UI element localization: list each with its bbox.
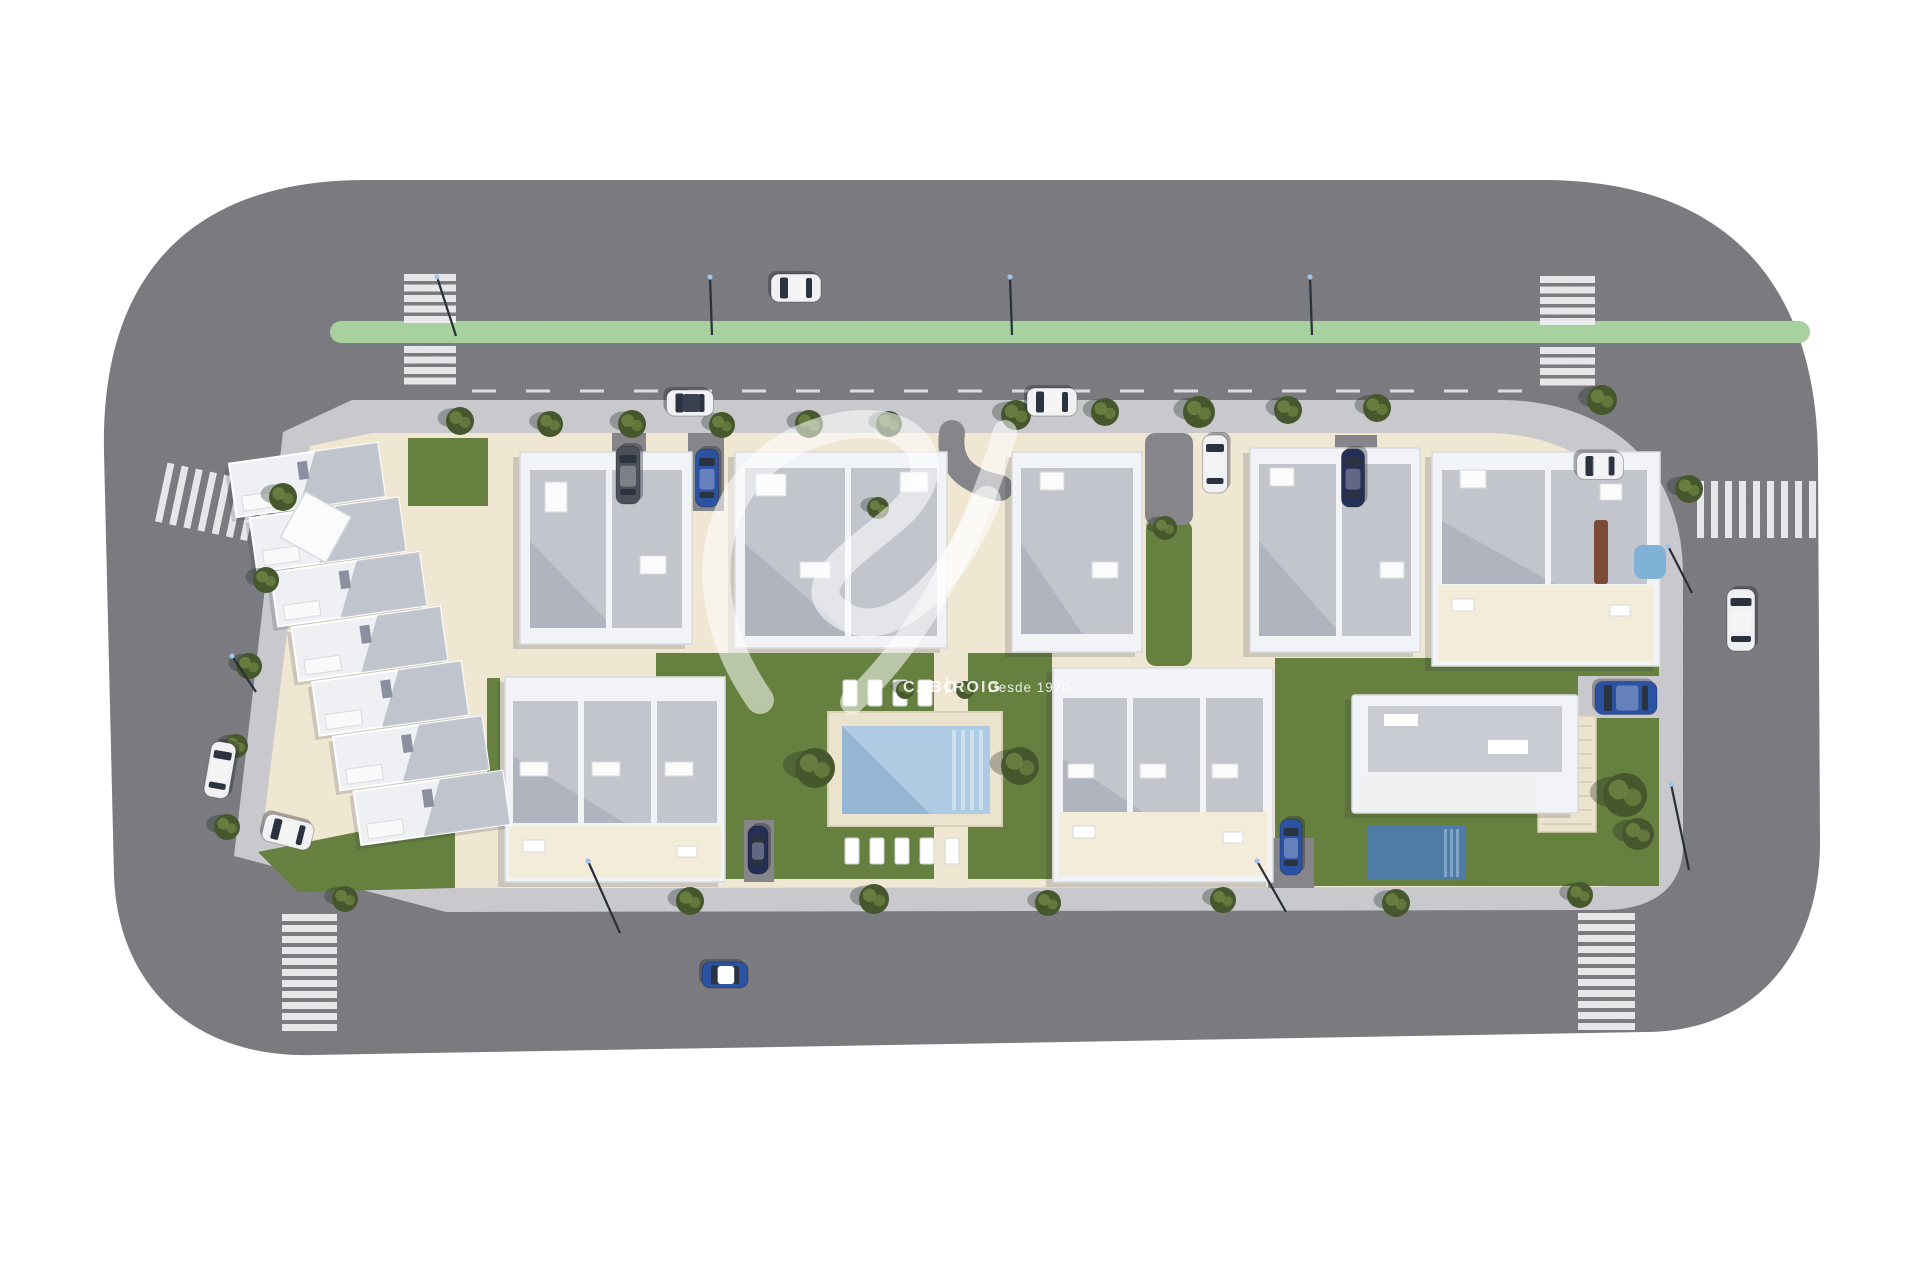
tree-foliage xyxy=(1015,411,1027,423)
crosswalk-stripe xyxy=(282,914,337,921)
crosswalk-stripe xyxy=(404,285,456,292)
wooden-pergola xyxy=(1594,520,1608,584)
tree-foliage xyxy=(459,417,470,428)
crosswalk xyxy=(1697,481,1816,538)
crosswalk-stripe xyxy=(1578,968,1635,975)
crosswalk-stripe xyxy=(282,958,337,965)
crosswalk-stripe xyxy=(1540,318,1595,325)
crosswalk-stripe xyxy=(404,295,456,302)
crosswalk-stripe xyxy=(1578,913,1635,920)
tree-foliage xyxy=(344,895,354,905)
rooftop-structure xyxy=(1380,562,1404,578)
car xyxy=(699,959,748,988)
car xyxy=(616,443,643,504)
car xyxy=(1280,816,1305,875)
crosswalk-stripe xyxy=(1578,990,1635,997)
crosswalk-stripe xyxy=(1578,1001,1635,1008)
tree-foliage xyxy=(1601,396,1613,408)
rooftop-structure xyxy=(520,762,548,776)
watermark-tagline: Desde 1970 xyxy=(988,680,1071,695)
crosswalk-stripe xyxy=(1739,481,1746,538)
car-windshield xyxy=(780,278,788,299)
car-roof xyxy=(700,469,715,490)
tree-foliage xyxy=(226,823,236,833)
pool-steps xyxy=(979,730,983,810)
tree-foliage xyxy=(1376,404,1387,415)
crosswalk-stripe xyxy=(1540,379,1595,386)
crosswalk-stripe xyxy=(1578,979,1635,986)
car-roof xyxy=(718,966,735,984)
rooftop-structure xyxy=(1600,484,1622,500)
streetlamp-head xyxy=(1254,858,1259,863)
pool-steps xyxy=(952,730,956,810)
tree-foliage xyxy=(1198,407,1211,420)
car-roof xyxy=(1592,457,1609,476)
car xyxy=(696,446,722,507)
car-roof xyxy=(1284,838,1298,858)
car-roof xyxy=(788,278,806,298)
crosswalk-stripe xyxy=(282,947,337,954)
crosswalk xyxy=(1578,913,1635,1030)
terrace-furniture xyxy=(523,840,545,852)
crosswalk-stripe xyxy=(1540,358,1595,365)
crosswalk-stripe xyxy=(1781,481,1788,538)
crosswalk-stripe xyxy=(282,980,337,987)
villa-roof-structure xyxy=(1488,740,1528,754)
tree-foliage xyxy=(1624,788,1642,806)
sun-lounger xyxy=(870,838,884,864)
crosswalk-stripe xyxy=(404,316,456,323)
car xyxy=(1342,446,1368,507)
streetlamp-head xyxy=(1307,274,1312,279)
tree-foliage xyxy=(1688,485,1699,496)
rowhouse-h xyxy=(1046,668,1273,887)
car-windshield xyxy=(752,835,765,843)
crosswalk-stripe xyxy=(1711,481,1718,538)
car xyxy=(1727,586,1758,651)
streetlamp-head xyxy=(1007,274,1012,279)
car xyxy=(1203,432,1231,493)
crosswalk-stripe xyxy=(1540,276,1595,283)
tree-foliage xyxy=(1047,899,1057,909)
crosswalk-stripe xyxy=(404,367,456,374)
car-windshield xyxy=(1206,444,1224,452)
tree-foliage xyxy=(689,897,700,908)
crosswalk-stripe xyxy=(1725,481,1732,538)
car-windshield xyxy=(620,455,637,463)
tree-foliage xyxy=(265,576,275,586)
lawn xyxy=(408,438,488,506)
car xyxy=(768,271,821,302)
car xyxy=(748,823,771,874)
terrace-furniture xyxy=(1610,605,1630,616)
car-roof xyxy=(752,842,764,859)
apartment-b1 xyxy=(513,452,692,649)
car-windshield xyxy=(1036,392,1044,413)
tree-foliage xyxy=(873,895,885,907)
rooftop-structure xyxy=(1270,468,1294,486)
car-windshield xyxy=(1731,598,1752,606)
rooftop-structure xyxy=(592,762,620,776)
crosswalk-stripe xyxy=(1540,368,1595,375)
rowhouse-f xyxy=(498,677,725,887)
tree-foliage xyxy=(248,662,258,672)
car-windshield xyxy=(1345,458,1361,466)
car-windshield xyxy=(1604,685,1612,711)
crosswalk-stripe xyxy=(1767,481,1774,538)
car xyxy=(664,387,714,416)
sun-lounger xyxy=(945,838,959,864)
car-rear-window xyxy=(1731,636,1751,642)
villa-terrace xyxy=(1358,776,1536,812)
car-rear-window xyxy=(1609,457,1615,476)
rooftop-spa xyxy=(1634,545,1666,579)
driveway xyxy=(1145,433,1193,525)
car-rear-window xyxy=(1062,392,1068,412)
pool-steps xyxy=(970,730,974,810)
crosswalk-stripe xyxy=(282,991,337,998)
car-windshield xyxy=(1284,828,1299,836)
terrace xyxy=(1059,812,1267,876)
car xyxy=(1592,679,1657,715)
terrace-furniture xyxy=(1452,599,1474,611)
car-rear-window xyxy=(1284,860,1298,866)
streetlamp-head xyxy=(1665,543,1670,548)
tree-foliage xyxy=(1579,891,1589,901)
car-windshield xyxy=(699,458,715,466)
pool-steps xyxy=(961,730,965,810)
crosswalk-stripe xyxy=(282,969,337,976)
crosswalk-stripe xyxy=(1578,957,1635,964)
tree-foliage xyxy=(721,421,731,431)
tree-foliage xyxy=(549,420,559,430)
streetlamp-head xyxy=(1668,781,1673,786)
villa-pool-steps xyxy=(1444,829,1447,877)
crosswalk-stripe xyxy=(1540,297,1595,304)
tree-foliage xyxy=(1164,524,1174,534)
rooftop-structure xyxy=(545,482,567,512)
crosswalk-stripe xyxy=(1540,287,1595,294)
rooftop-structure xyxy=(1040,472,1064,490)
crosswalk-stripe xyxy=(1578,935,1635,942)
rooftop-structure xyxy=(665,762,693,776)
villa-pool-steps xyxy=(1450,829,1453,877)
unit-divider xyxy=(606,456,612,640)
car-rear-window xyxy=(1207,478,1224,484)
car-roof xyxy=(1616,686,1638,711)
crosswalk-stripe xyxy=(282,1002,337,1009)
apartment-b5 xyxy=(1425,452,1660,671)
crosswalk-stripe xyxy=(1540,308,1595,315)
tree-foliage xyxy=(1395,899,1406,910)
terrace-furniture xyxy=(1223,832,1243,843)
car-rear-window xyxy=(806,278,812,298)
crosswalk-stripe xyxy=(1540,347,1595,354)
terrace-furniture xyxy=(1073,826,1095,838)
tree-foliage xyxy=(1287,406,1298,417)
rooftop-structure xyxy=(1068,764,1094,778)
crosswalk-stripe xyxy=(1578,1023,1635,1030)
car-rear-window xyxy=(1346,492,1361,498)
site-plan-render: CABO ROIG Desde 1970 xyxy=(0,0,1920,1280)
sun-lounger xyxy=(920,838,934,864)
rooftop-structure xyxy=(1140,764,1166,778)
crosswalk-stripe xyxy=(1809,481,1816,538)
car-rear-window xyxy=(620,489,636,495)
crosswalk-stripe xyxy=(1753,481,1760,538)
aerial-scene: CABO ROIG Desde 1970 xyxy=(0,0,1920,1280)
tree-foliage xyxy=(1637,829,1650,842)
apartment-b3 xyxy=(1005,452,1142,657)
crosswalk-stripe xyxy=(404,378,456,385)
tree-foliage xyxy=(631,420,642,431)
car-roof xyxy=(620,466,636,487)
tree-foliage xyxy=(1104,408,1115,419)
car-roof xyxy=(210,760,230,783)
crosswalk-stripe xyxy=(404,274,456,281)
crosswalk xyxy=(282,914,337,1031)
car-rear-window xyxy=(1642,686,1648,711)
crosswalk-stripe xyxy=(1795,481,1802,538)
car-roof xyxy=(1044,392,1062,412)
car-windshield xyxy=(676,394,684,413)
car xyxy=(1574,450,1624,480)
streetlamp-head xyxy=(434,274,439,279)
crosswalk-stripe xyxy=(404,346,456,353)
rooftop-structure xyxy=(1212,764,1238,778)
tree-foliage xyxy=(1222,896,1232,906)
villa-pool-steps xyxy=(1456,829,1459,877)
terrace-furniture xyxy=(677,846,697,857)
streetlamp-head xyxy=(229,653,234,658)
car-windshield xyxy=(1586,456,1594,476)
car xyxy=(1024,385,1077,416)
crosswalk-stripe xyxy=(282,936,337,943)
car-roof xyxy=(1207,455,1224,476)
lawn xyxy=(1146,520,1192,666)
car-rear-window xyxy=(700,492,715,498)
crosswalk-stripe xyxy=(282,1024,337,1031)
streetlamp-head xyxy=(585,858,590,863)
car-rear-window xyxy=(752,859,764,865)
villa-roof-structure xyxy=(1384,714,1418,726)
crosswalk-stripe xyxy=(1578,924,1635,931)
car-roof xyxy=(1731,610,1751,632)
tree-foliage xyxy=(1019,760,1034,775)
sun-lounger xyxy=(895,838,909,864)
rooftop-structure xyxy=(1460,470,1486,488)
sun-lounger xyxy=(845,838,859,864)
crosswalk-stripe xyxy=(282,925,337,932)
tree-foliage xyxy=(814,762,830,778)
terrace xyxy=(1438,585,1654,661)
crosswalk-stripe xyxy=(282,1013,337,1020)
apartment-b4 xyxy=(1243,448,1420,657)
car-roof xyxy=(1346,469,1361,490)
car-open-cabin xyxy=(682,394,700,412)
crosswalk-stripe xyxy=(1578,946,1635,953)
rooftop-structure xyxy=(1092,562,1118,578)
crosswalk-stripe xyxy=(1578,1012,1635,1019)
tree-foliage xyxy=(282,493,293,504)
rooftop-structure xyxy=(640,556,666,574)
watermark-brand-left: CABO xyxy=(903,679,958,696)
crosswalk-stripe xyxy=(404,357,456,364)
streetlamp-head xyxy=(707,274,712,279)
